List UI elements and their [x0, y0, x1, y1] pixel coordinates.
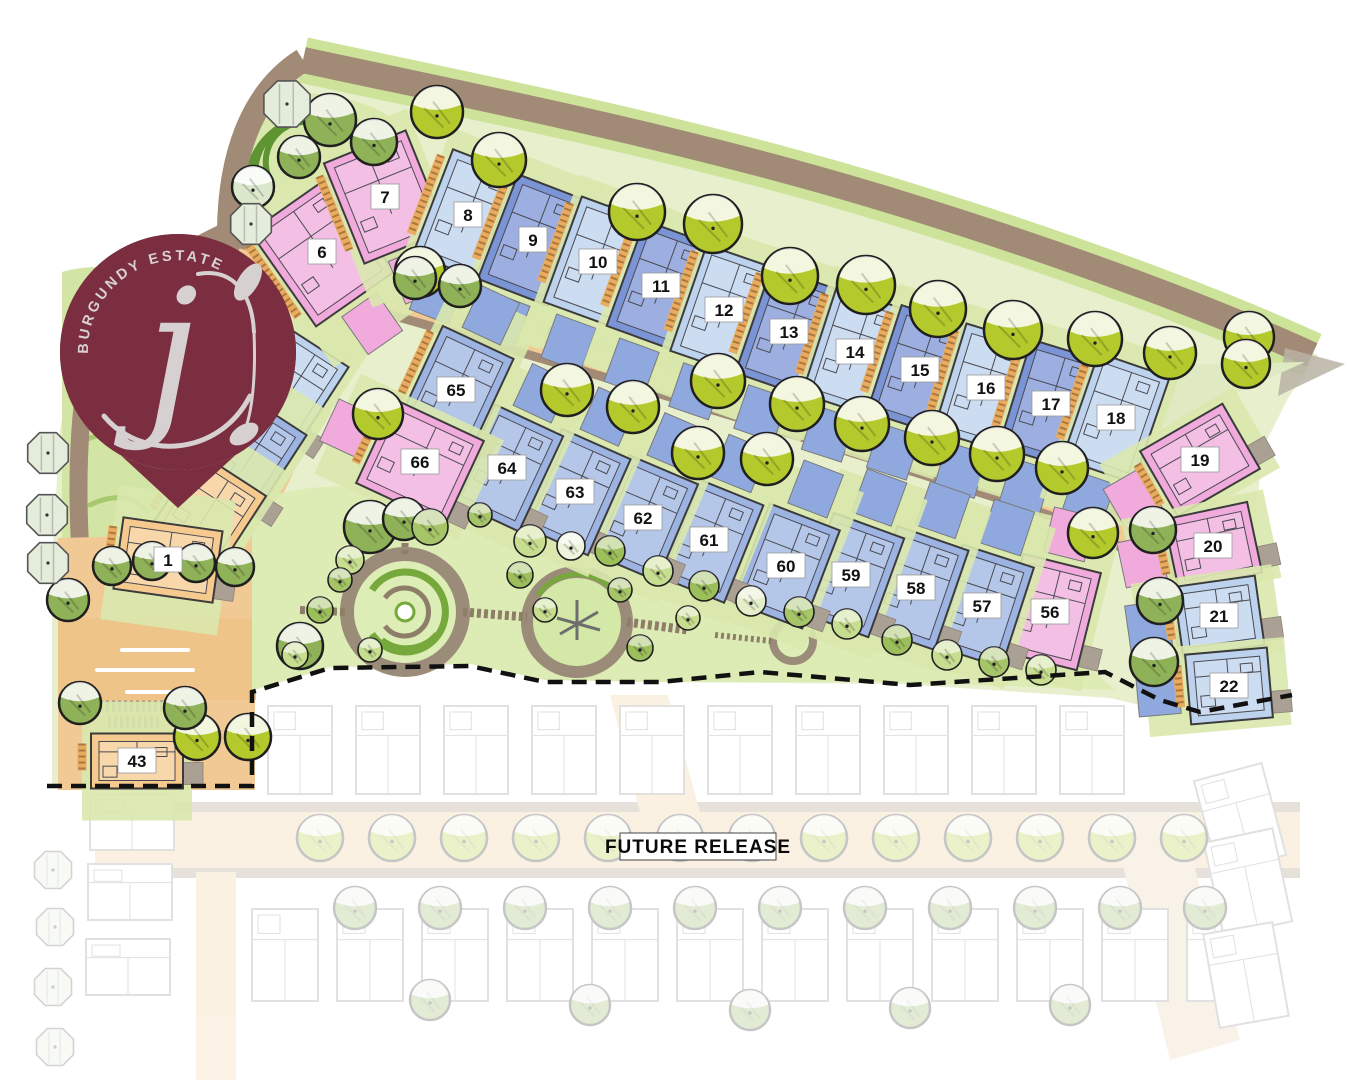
svg-text:60: 60 — [777, 557, 796, 576]
oct-tree-icon — [264, 81, 310, 127]
lot-label-16: 16 — [967, 375, 1005, 400]
svg-text:62: 62 — [634, 509, 653, 528]
future-house — [1060, 706, 1124, 794]
future-house — [1203, 922, 1288, 1028]
shrub-tree-icon — [736, 586, 766, 616]
lot-label-58: 58 — [897, 575, 935, 600]
lot-label-56: 56 — [1031, 599, 1069, 624]
future-house — [86, 939, 170, 995]
shrub-tree-icon — [676, 606, 700, 630]
oct-tree-icon — [28, 433, 69, 474]
green-tree-icon — [394, 257, 436, 299]
lime-tree-icon — [1036, 442, 1088, 494]
green-tree-icon — [674, 887, 716, 929]
lime-tree-icon — [225, 714, 271, 760]
lot-label-15: 15 — [901, 357, 939, 382]
green-tree-icon — [730, 990, 770, 1030]
lime-tree-icon — [513, 815, 559, 861]
svg-text:1: 1 — [163, 551, 172, 570]
green-tree-icon — [929, 887, 971, 929]
green-tree-icon — [1050, 985, 1090, 1025]
lot-label-22: 22 — [1210, 673, 1248, 698]
green-tree-icon — [59, 682, 101, 724]
lot-label-21: 21 — [1200, 603, 1238, 628]
green-tree-icon — [351, 119, 397, 165]
green-tree-icon — [304, 94, 356, 146]
lot-label-6: 6 — [308, 239, 336, 264]
lot-label-63: 63 — [556, 479, 594, 504]
lime-tree-icon — [1068, 312, 1122, 366]
lime-tree-icon — [684, 195, 742, 253]
green-tree-icon — [419, 887, 461, 929]
future-house — [88, 864, 172, 920]
lime-tree-icon — [970, 427, 1024, 481]
svg-text:61: 61 — [700, 531, 719, 550]
lime-tree-icon — [873, 815, 919, 861]
lime-tree-icon — [607, 381, 659, 433]
lime-tree-icon — [1068, 508, 1118, 558]
lot-label-14: 14 — [836, 339, 874, 364]
shrub-tree-icon — [507, 562, 533, 588]
svg-text:9: 9 — [528, 231, 537, 250]
oct-tree-icon — [37, 909, 74, 946]
future-house — [356, 706, 420, 794]
green-tree-icon — [410, 980, 450, 1020]
oct-tree-icon — [37, 1029, 74, 1066]
lot-label-65: 65 — [437, 377, 475, 402]
shrub-tree-icon — [533, 598, 557, 622]
lime-tree-icon — [984, 301, 1042, 359]
lime-tree-icon — [472, 133, 526, 187]
green-tree-icon — [93, 547, 131, 585]
lime-tree-icon — [441, 815, 487, 861]
oct-tree-icon — [35, 852, 72, 889]
svg-text:22: 22 — [1220, 677, 1239, 696]
future-house — [532, 706, 596, 794]
shrub-tree-icon — [627, 635, 653, 661]
lime-tree-icon — [770, 377, 824, 431]
lot-label-17: 17 — [1032, 391, 1070, 416]
svg-text:21: 21 — [1210, 607, 1229, 626]
lime-tree-icon — [369, 815, 415, 861]
green-tree-icon — [439, 265, 481, 307]
shrub-tree-icon — [643, 556, 673, 586]
lot-label-57: 57 — [963, 593, 1001, 618]
green-tree-icon — [278, 136, 320, 178]
green-tree-icon — [844, 887, 886, 929]
svg-text:59: 59 — [842, 566, 861, 585]
green-tree-icon — [759, 887, 801, 929]
svg-text:7: 7 — [380, 188, 389, 207]
lot-label-20: 20 — [1194, 533, 1232, 558]
svg-text:6: 6 — [317, 243, 326, 262]
lot-label-43: 43 — [118, 748, 156, 773]
road-top-end-wedge — [1278, 348, 1345, 396]
parking-line-1 — [120, 648, 190, 652]
green-tree-icon — [164, 687, 206, 729]
svg-text:19: 19 — [1191, 451, 1210, 470]
future-release-text: FUTURE RELEASE — [605, 837, 791, 858]
parking-line-2 — [95, 668, 195, 672]
green-tree-icon — [1130, 638, 1178, 686]
green-tree-icon — [589, 887, 631, 929]
lot-label-19: 19 — [1181, 447, 1219, 472]
lime-tree-icon — [837, 256, 895, 314]
svg-text:11: 11 — [652, 277, 670, 296]
oct-tree-icon — [231, 204, 272, 245]
lime-tree-icon — [1161, 815, 1207, 861]
svg-text:16: 16 — [977, 379, 996, 398]
lot-label-62: 62 — [624, 505, 662, 530]
lime-tree-icon — [945, 815, 991, 861]
lime-tree-icon — [1222, 340, 1270, 388]
shrub-tree-icon — [784, 597, 814, 627]
shrub-tree-icon — [608, 578, 632, 602]
green-tree-icon — [1014, 887, 1056, 929]
lot-label-10: 10 — [579, 249, 617, 274]
svg-text:14: 14 — [846, 343, 865, 362]
svg-text:8: 8 — [463, 206, 472, 225]
lot-label-9: 9 — [519, 227, 547, 252]
oct-tree-icon — [35, 969, 72, 1006]
future-house — [972, 706, 1036, 794]
shrub-tree-icon — [282, 642, 308, 668]
lime-tree-icon — [1017, 815, 1063, 861]
green-tree-icon — [1184, 887, 1226, 929]
lime-tree-icon — [353, 389, 403, 439]
green-tree-icon — [1130, 507, 1176, 553]
svg-text:18: 18 — [1107, 409, 1126, 428]
lime-tree-icon — [801, 815, 847, 861]
lime-tree-icon — [672, 427, 724, 479]
future-house — [252, 909, 318, 1001]
lot-label-12: 12 — [705, 297, 743, 322]
pale-tree-icon — [232, 166, 274, 208]
lime-tree-icon — [609, 184, 665, 240]
svg-text:13: 13 — [780, 323, 799, 342]
shrub-tree-icon — [595, 536, 625, 566]
shrub-tree-icon — [557, 532, 585, 560]
lot-label-61: 61 — [690, 527, 728, 552]
lime-tree-icon — [1144, 327, 1196, 379]
svg-text:15: 15 — [911, 361, 930, 380]
lime-tree-icon — [910, 281, 966, 337]
lot-label-8: 8 — [454, 202, 482, 227]
site-plan-map: 1678910111213141516171819202122435657585… — [0, 0, 1350, 1080]
lime-tree-icon — [741, 433, 793, 485]
lime-tree-icon — [297, 815, 343, 861]
future-house — [796, 706, 860, 794]
svg-text:65: 65 — [447, 381, 466, 400]
future-house — [620, 706, 684, 794]
green-tree-icon — [177, 544, 215, 582]
oct-tree-icon — [28, 543, 69, 584]
shrub-tree-icon — [689, 571, 719, 601]
lime-tree-icon — [411, 86, 463, 138]
svg-text:58: 58 — [907, 579, 926, 598]
svg-text:20: 20 — [1204, 537, 1223, 556]
future-house — [444, 706, 508, 794]
green-tree-icon — [216, 548, 254, 586]
lime-tree-icon — [762, 248, 818, 304]
svg-text:64: 64 — [498, 459, 517, 478]
lime-tree-icon — [541, 364, 593, 416]
shrub-tree-icon — [514, 525, 546, 557]
oct-tree-icon — [27, 495, 68, 536]
lot-label-13: 13 — [770, 319, 808, 344]
lime-tree-icon — [905, 411, 959, 465]
lot-label-64: 64 — [488, 455, 526, 480]
shrub-tree-icon — [307, 597, 333, 623]
masterplan-canvas: 1678910111213141516171819202122435657585… — [0, 0, 1350, 1080]
green-tree-icon — [1099, 887, 1141, 929]
svg-text:12: 12 — [715, 301, 734, 320]
future-house — [268, 706, 332, 794]
lime-tree-icon — [1089, 815, 1135, 861]
shrub-tree-icon — [882, 625, 912, 655]
shrub-tree-icon — [358, 638, 382, 662]
future-house — [884, 706, 948, 794]
svg-text:63: 63 — [566, 483, 585, 502]
lot-label-59: 59 — [832, 562, 870, 587]
svg-text:66: 66 — [411, 453, 430, 472]
shrub-tree-icon — [932, 640, 962, 670]
green-tree-icon — [47, 579, 89, 621]
green-tree-icon — [1137, 578, 1183, 624]
svg-text:43: 43 — [128, 752, 147, 771]
lot-label-7: 7 — [371, 184, 399, 209]
lot-label-60: 60 — [767, 553, 805, 578]
svg-text:10: 10 — [589, 253, 608, 272]
green-tree-icon — [570, 985, 610, 1025]
svg-text:17: 17 — [1042, 395, 1061, 414]
green-tree-icon — [504, 887, 546, 929]
green-tree-icon — [334, 887, 376, 929]
lime-tree-icon — [691, 354, 745, 408]
svg-text:57: 57 — [973, 597, 992, 616]
shrub-tree-icon — [979, 647, 1009, 677]
future-release-label: FUTURE RELEASE — [605, 833, 791, 860]
lot-label-1: 1 — [154, 547, 182, 572]
lot-label-66: 66 — [401, 449, 439, 474]
shrub-tree-icon — [832, 609, 862, 639]
shrub-tree-icon — [412, 509, 448, 545]
lot-label-18: 18 — [1097, 405, 1135, 430]
shrub-tree-icon — [1026, 655, 1056, 685]
shrub-tree-icon — [468, 503, 492, 527]
green-tree-icon — [890, 988, 930, 1028]
future-house — [708, 706, 772, 794]
svg-text:56: 56 — [1041, 603, 1060, 622]
lime-tree-icon — [835, 397, 889, 451]
shrub-tree-icon — [328, 568, 352, 592]
lot-label-11: 11 — [642, 273, 680, 298]
